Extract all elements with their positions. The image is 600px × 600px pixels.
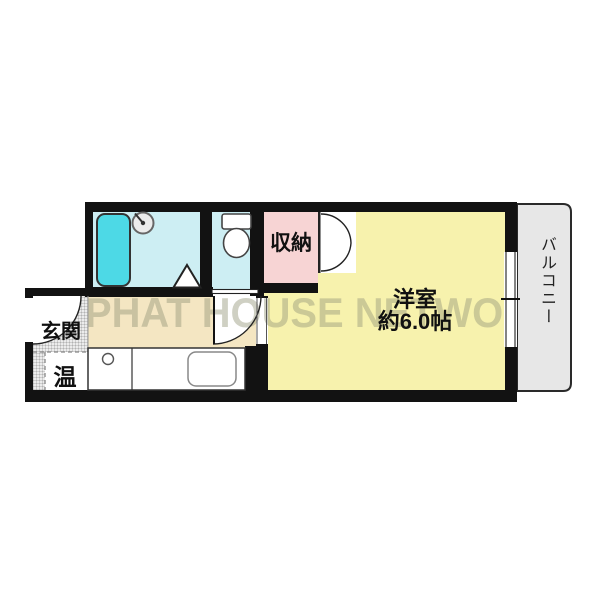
wall-right-lower	[505, 347, 517, 390]
floorplan-image: PHAT HOUSE NETWORK	[0, 0, 600, 600]
shower-faucet-icon	[133, 213, 154, 234]
toilet-door-arc	[213, 296, 261, 344]
main-room-label: 洋室 約6.0帖	[335, 289, 495, 333]
wall-bottom	[25, 390, 517, 402]
main-room-size: 約6.0帖	[335, 311, 495, 333]
wall-right-upper	[505, 212, 517, 252]
toilet-fixture	[222, 214, 251, 258]
toilet-door	[212, 290, 261, 345]
closet-doors	[318, 212, 351, 273]
kitchen-sink	[188, 352, 236, 386]
wall-top	[85, 202, 517, 212]
wall-kitchen-end	[245, 346, 256, 390]
closet-door-arc-top	[321, 214, 351, 243]
wall-left-lower	[25, 342, 33, 392]
wall-hall-room-bottom	[256, 344, 268, 390]
wall-hall-room-top	[256, 296, 268, 298]
wall-bath-left	[85, 212, 93, 296]
wall-closet-bottom	[250, 283, 318, 293]
closet-door-arc-bottom	[321, 243, 351, 271]
water-heater-label: 温	[50, 358, 80, 392]
room-doorway	[257, 298, 267, 344]
burner-icon	[103, 354, 114, 365]
wall-bath-toilet-divider	[200, 212, 212, 290]
entrance-label: 玄関	[35, 315, 87, 344]
closet-label: 収納	[263, 227, 319, 257]
balcony-label: バルコニー	[524, 236, 558, 361]
wall-entrance-top	[25, 288, 93, 296]
bathtub	[97, 214, 130, 286]
bathroom-door-triangle	[174, 265, 201, 288]
main-room-name: 洋室	[335, 289, 495, 311]
structure-layer	[0, 0, 600, 600]
